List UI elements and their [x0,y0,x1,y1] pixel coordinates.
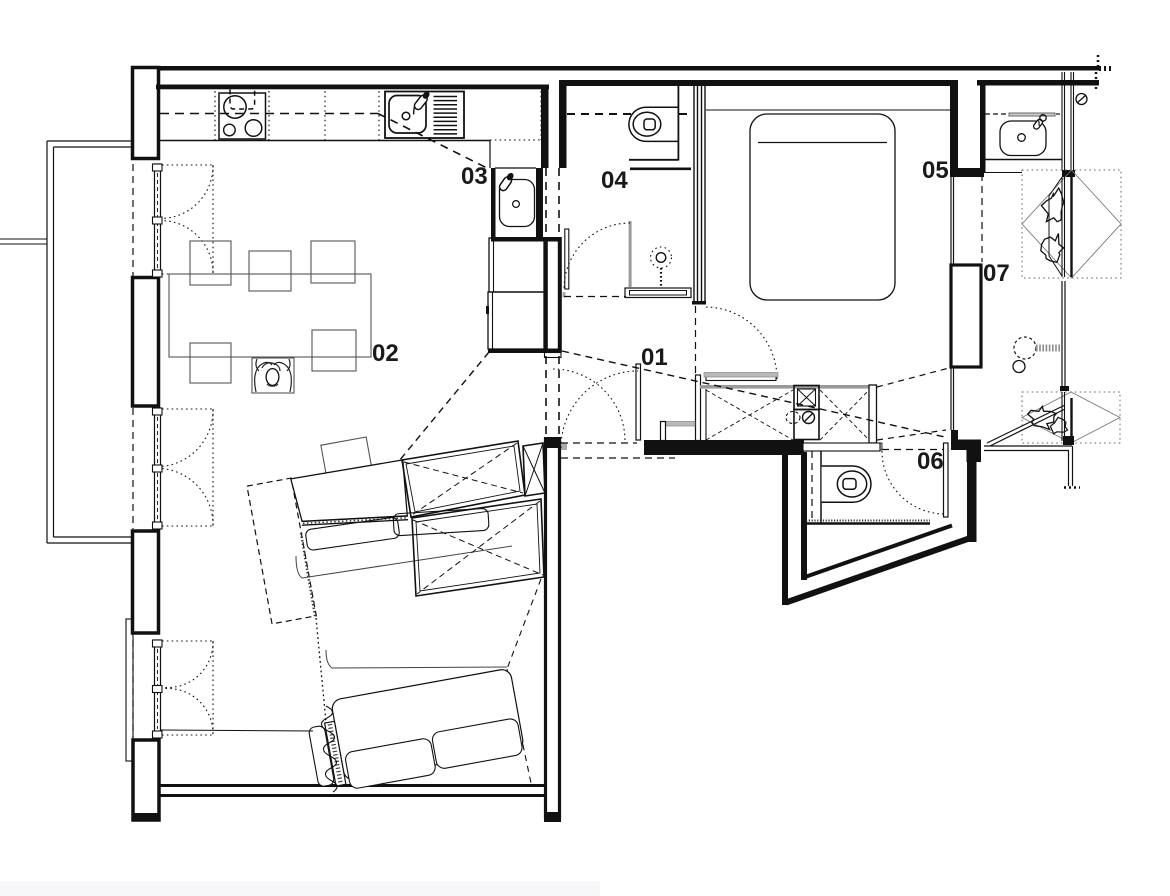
svg-text:01: 01 [641,344,668,371]
svg-text:04: 04 [601,167,628,194]
svg-text:07: 07 [983,260,1010,287]
svg-text:05: 05 [922,157,949,184]
svg-text:06: 06 [917,448,944,475]
svg-text:02: 02 [372,340,399,367]
svg-text:03: 03 [461,163,488,190]
